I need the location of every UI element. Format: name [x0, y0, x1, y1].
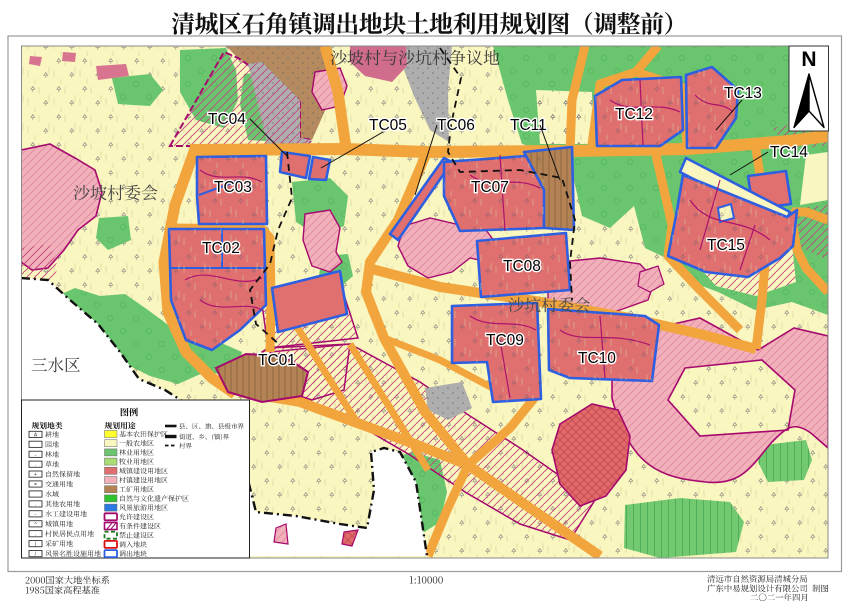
svg-text:=: =	[34, 482, 37, 488]
svg-text:TC04: TC04	[208, 111, 246, 128]
svg-text:TC01: TC01	[258, 352, 296, 369]
svg-text:TC12: TC12	[615, 106, 653, 123]
svg-text:TC10: TC10	[578, 350, 616, 367]
svg-text:.: .	[35, 532, 36, 538]
svg-text:TC03: TC03	[214, 179, 252, 196]
svg-text:|: |	[35, 542, 36, 548]
svg-text:TC09: TC09	[486, 332, 524, 349]
svg-text:TC14: TC14	[770, 144, 808, 161]
svg-text:TC05: TC05	[369, 117, 407, 134]
svg-text:.: .	[35, 462, 36, 468]
svg-text:TC08: TC08	[503, 258, 541, 275]
svg-text:TC06: TC06	[437, 117, 475, 134]
svg-text:TC13: TC13	[724, 85, 762, 102]
svg-text:.: .	[35, 502, 36, 508]
svg-text:+: +	[34, 472, 37, 478]
svg-text:N: N	[801, 48, 816, 71]
svg-text:TC07: TC07	[471, 179, 509, 196]
svg-text:TC11: TC11	[510, 117, 547, 134]
svg-text:TC02: TC02	[202, 240, 240, 257]
svg-text:TC15: TC15	[707, 237, 745, 254]
